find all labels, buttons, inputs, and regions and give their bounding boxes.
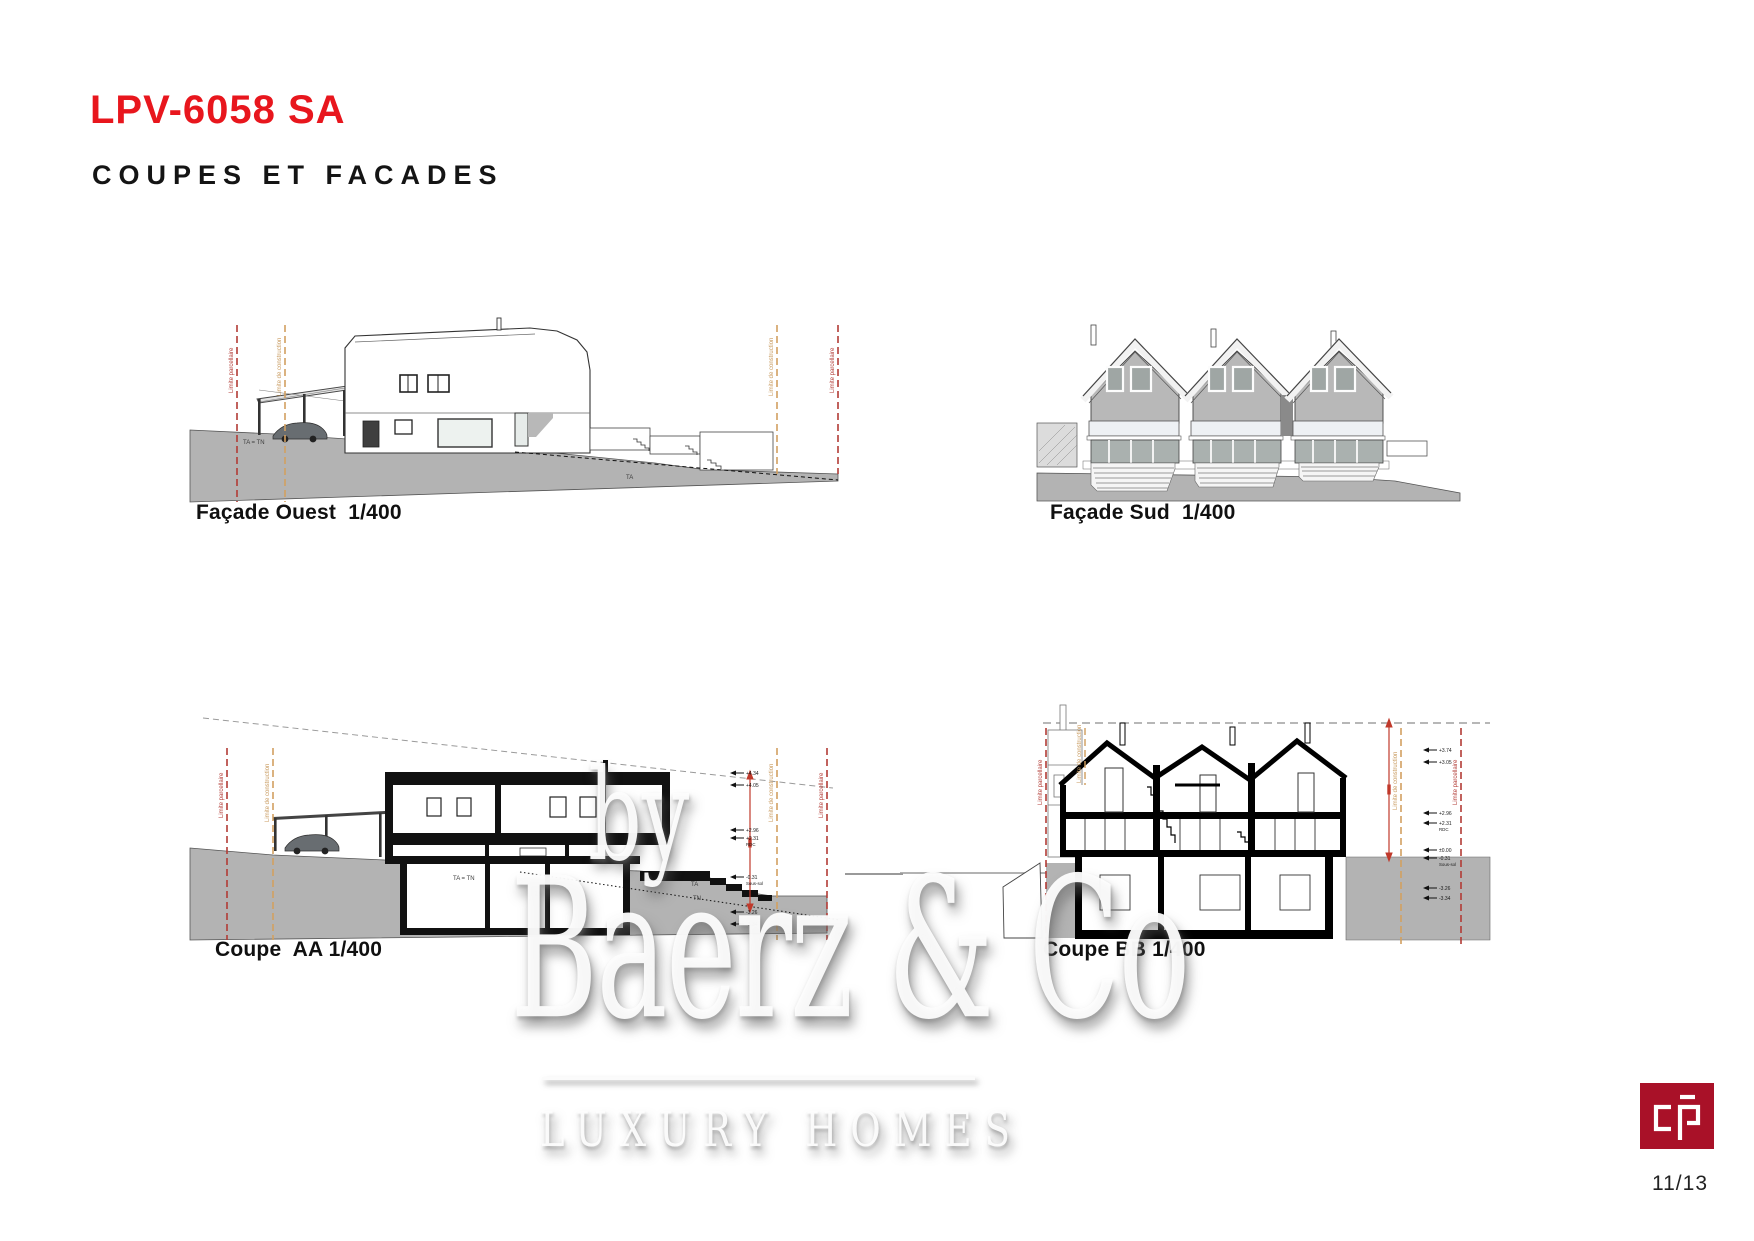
limit-construction-label: Limite de construction	[265, 764, 271, 822]
car-silhouette	[285, 835, 339, 855]
terrain-note: TA	[626, 475, 633, 481]
limit-construction-label: Limite de construction	[1077, 725, 1083, 783]
limit-construction-label: Limite de construction	[277, 338, 283, 396]
watermark-tagline: LUXURY HOMES	[540, 1102, 1023, 1158]
facade-sud-drawing	[1035, 295, 1465, 510]
terrain-note: TA = TN	[453, 876, 475, 882]
terrace-wall	[1387, 441, 1427, 456]
limit-construction-label: Limite de construction	[769, 338, 775, 396]
company-logo-icon	[1640, 1083, 1714, 1149]
plan-page: LPV-6058 SA COUPES ET FACADES	[0, 0, 1754, 1241]
svg-text:-3.34: -3.34	[1439, 896, 1451, 902]
facade-ouest-drawing: Limite parcellaire Limite de constructio…	[185, 278, 850, 508]
svg-text:+4.34: +4.34	[746, 771, 759, 777]
svg-text:Sous-sol: Sous-sol	[1439, 862, 1456, 867]
limit-parcel-label: Limite parcellaire	[819, 772, 825, 818]
limit-parcel-label: Limite parcellaire	[219, 772, 225, 818]
svg-text:+4.05: +4.05	[746, 783, 759, 789]
terrain-shape	[1346, 857, 1490, 940]
retaining-wall	[1037, 423, 1077, 467]
limit-parcel-label: Limite parcellaire	[229, 347, 235, 393]
svg-text:+3.05: +3.05	[1439, 760, 1452, 766]
svg-text:-3.26: -3.26	[1439, 886, 1451, 892]
svg-text:RDC: RDC	[1439, 827, 1449, 832]
height-dimension-line	[1386, 719, 1392, 861]
svg-text:±0.00: ±0.00	[1439, 848, 1452, 854]
page-subtitle: COUPES ET FACADES	[92, 160, 504, 191]
coupe-aa-caption: Coupe AA 1/400	[215, 938, 382, 962]
facade-sud-caption: Façade Sud 1/400	[1050, 501, 1236, 525]
house-elevation	[345, 318, 590, 453]
terrain-note: TA = TN	[243, 440, 265, 446]
limit-construction-label: Limite de construction	[769, 764, 775, 822]
facade-ouest-caption: Façade Ouest 1/400	[196, 501, 402, 525]
limit-parcel-label: Limite parcellaire	[830, 347, 836, 393]
limit-parcel-label: Limite parcellaire	[1038, 759, 1044, 805]
page-title: LPV-6058 SA	[90, 88, 346, 133]
limit-construction-label: Limite de construction	[1393, 752, 1399, 810]
limit-parcel-label: Limite parcellaire	[1453, 759, 1459, 805]
watermark-rule	[542, 1077, 975, 1080]
house-units	[1083, 325, 1391, 463]
svg-text:+3.74: +3.74	[1439, 748, 1452, 754]
watermark-brand: Baerz & Co	[510, 838, 1189, 1063]
page-number: 11/13	[1652, 1172, 1708, 1196]
svg-text:+2.96: +2.96	[1439, 811, 1452, 817]
svg-text:+2.96: +2.96	[746, 828, 759, 834]
